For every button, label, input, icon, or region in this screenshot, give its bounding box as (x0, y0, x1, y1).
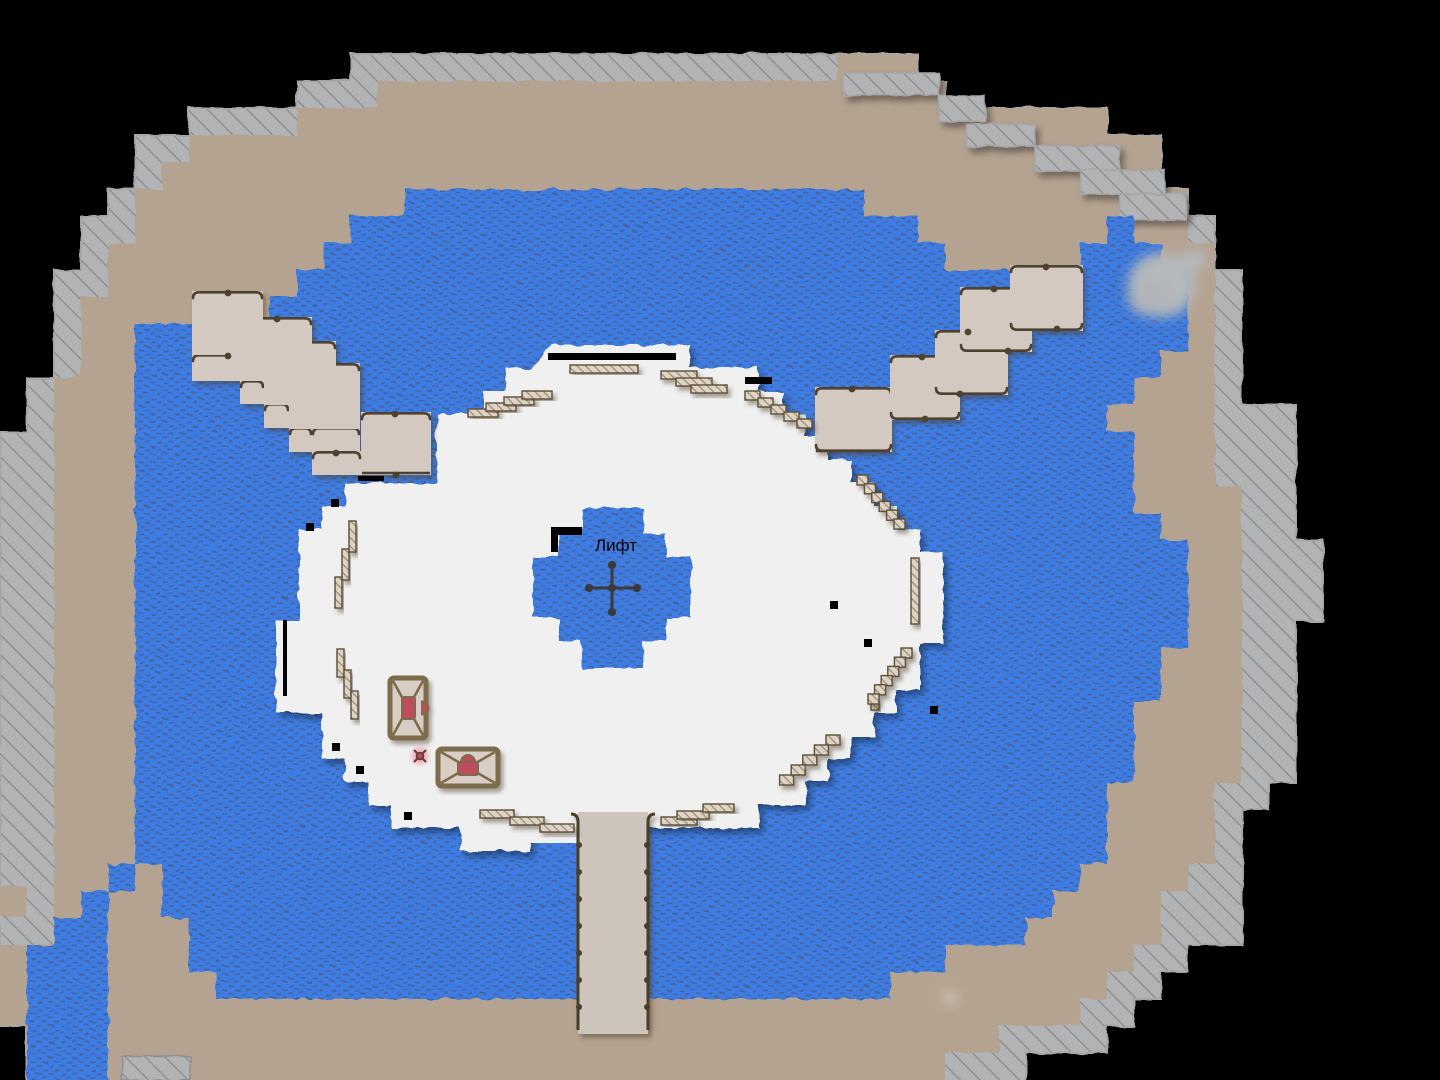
svg-text:Лифт: Лифт (595, 536, 637, 555)
